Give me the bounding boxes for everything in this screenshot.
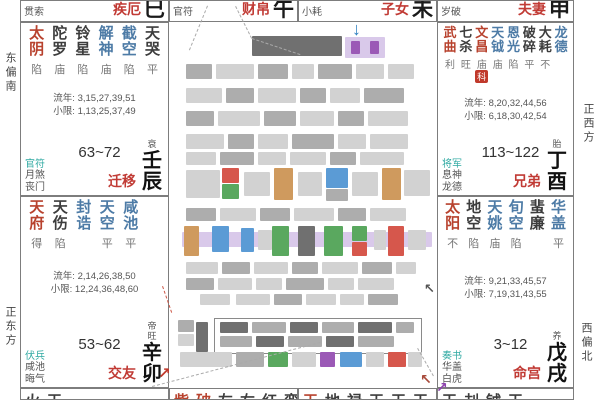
star-name: 文昌 — [475, 26, 488, 53]
liunian-xiaoxian: 流年: 2,14,26,38,50小限: 12,24,36,48,60 — [25, 270, 164, 296]
liunian-xiaoxian: 流年: 9,21,33,45,57小限: 7,19,31,43,55 — [442, 275, 569, 301]
censored-text-block — [338, 208, 366, 221]
censored-text-block — [388, 226, 404, 256]
censored-text-block — [274, 168, 293, 200]
star-天府: 天府得 — [25, 200, 49, 247]
star-天空: 天空平 — [96, 200, 120, 247]
censored-text-block — [330, 88, 360, 103]
censored-text-block — [340, 294, 364, 305]
censored-text-block — [186, 170, 220, 198]
brightness-label: 得 — [31, 235, 42, 247]
age-range: 113~122 — [476, 144, 545, 161]
star-铃星: 铃星陷 — [71, 26, 94, 73]
changsheng-label: 衰 — [146, 139, 159, 149]
censored-text-block — [196, 322, 208, 352]
censored-text-block — [260, 208, 290, 221]
star-旬空: 旬空陷 — [506, 200, 527, 247]
censored-text-block — [370, 208, 406, 221]
clipped-star-names: 天刦钺天 — [442, 390, 569, 400]
censored-text-block — [352, 242, 367, 256]
star-name: 陀罗 — [52, 26, 67, 58]
star-天钺: 天钺庙 — [490, 26, 506, 83]
censored-text-block — [360, 152, 404, 165]
censored-text-block — [300, 111, 334, 126]
branch-char: 未 — [412, 0, 433, 20]
star-大耗: 大耗不 — [537, 26, 553, 83]
censored-text-block — [258, 230, 272, 250]
censored-text-block — [352, 172, 378, 196]
star-name: 解神 — [99, 26, 114, 58]
censored-text-block — [368, 294, 398, 305]
liunian-xiaoxian: 流年: 3,15,27,39,51小限: 1,13,25,37,49 — [25, 92, 164, 118]
censored-text-block — [388, 352, 406, 367]
palace-footer: 伏兵咸池晦气53~62交友帝旺辛卯 — [25, 321, 164, 385]
xiaoxian-line: 小限: 1,13,25,37,49 — [25, 105, 164, 118]
brightness-label: 陷 — [124, 61, 135, 73]
brightness-label: 庙 — [489, 235, 500, 247]
palace-name-label: 命宫 — [513, 363, 541, 383]
xiaoxian-line: 小限: 7,19,31,43,55 — [442, 288, 569, 301]
censored-text-block — [298, 172, 322, 196]
palace-name-label: 财帛 — [242, 0, 270, 20]
palace-yin[interactable]: 火天 — [20, 388, 169, 400]
censored-text-block — [186, 152, 216, 165]
censored-text-block — [252, 322, 286, 333]
censored-text-block — [254, 262, 288, 274]
shensha-label: 咸池 — [25, 362, 59, 374]
liunian-xiaoxian: 流年: 8,20,32,44,56小限: 6,18,30,42,54 — [442, 97, 569, 123]
star-row: 太阳不地空陷天姚庙旬空陷蜚廉华盖平 — [442, 200, 569, 247]
clipped-star-names: 紫破左右红鸾 — [174, 390, 293, 400]
star-天哭: 天哭平 — [141, 26, 164, 73]
censored-text-block — [366, 352, 384, 367]
star-name: 天姚 — [487, 200, 502, 232]
star-name: 地空 — [466, 200, 481, 232]
censored-text-block — [396, 262, 416, 274]
changsheng-label: 养 — [551, 331, 564, 341]
censored-text-block — [274, 294, 302, 305]
censored-text-block — [338, 134, 366, 149]
star-name: 天伤 — [53, 200, 68, 232]
censored-text-block — [258, 88, 296, 103]
brightness-label: 陷 — [508, 56, 518, 68]
xiaoxian-line: 小限: 12,24,36,48,60 — [25, 283, 164, 296]
brightness-label: 庙 — [493, 56, 503, 68]
censored-text-block — [351, 41, 360, 54]
palace-xu[interactable]: 太阳不地空陷天姚庙旬空陷蜚廉华盖平流年: 9,21,33,45,57小限: 7,… — [437, 196, 574, 388]
censored-text-block — [228, 134, 254, 149]
changsheng-label: 帝旺 — [146, 321, 159, 341]
palace-chou[interactable]: 紫破左右红鸾 — [169, 388, 298, 400]
star-龙德: 龙德 — [553, 26, 569, 83]
censored-text-block — [358, 336, 394, 347]
palace-name-label: 疾厄 — [113, 0, 141, 20]
brightness-label: 陷 — [468, 235, 479, 247]
ganzhi-chars: 壬辰 — [142, 151, 162, 193]
branch-char: 申 — [549, 0, 570, 20]
brightness-label: 庙 — [477, 56, 487, 68]
star-华盖: 华盖平 — [548, 200, 569, 247]
censored-text-block — [292, 262, 318, 274]
palace-you[interactable]: 武曲利七杀旺文昌庙科天钺庙恩光陷破碎平大耗不龙德流年: 8,20,32,44,5… — [437, 22, 574, 196]
shensha-label: 丧门 — [25, 182, 59, 194]
censored-text-block — [404, 170, 430, 196]
star-name: 截空 — [122, 26, 137, 58]
star-咸池: 咸池平 — [119, 200, 143, 247]
palace-footer: 将军息神龙德113~122兄弟胎丁酉 — [442, 139, 569, 193]
censored-text-block — [306, 294, 336, 305]
censored-text-block — [200, 294, 230, 305]
purple-ne-arrow-icon: ↗ — [436, 380, 448, 394]
hua-ke-badge: 科 — [475, 70, 488, 83]
censored-text-block — [186, 208, 216, 221]
censored-text-block — [370, 41, 379, 54]
censored-text-block — [264, 111, 296, 126]
censored-text-block — [184, 226, 199, 256]
shensha-label: 官符 — [25, 159, 59, 171]
palace-shen[interactable]: 岁破夫妻申 — [437, 0, 574, 22]
censored-text-block — [382, 168, 401, 200]
censored-text-block — [290, 322, 318, 333]
ganzhi-chars: 戊戌 — [547, 343, 567, 385]
censored-text-block — [226, 88, 254, 103]
clipped-star-names: 天地禄天天天 — [303, 390, 432, 400]
censored-text-block — [330, 152, 356, 165]
censored-text-block — [186, 262, 218, 274]
brightness-label: 旺 — [461, 56, 471, 68]
brightness-label: 平 — [102, 235, 113, 247]
censored-text-block — [241, 228, 254, 252]
shensha-stack: 伏兵咸池晦气 — [25, 351, 59, 386]
clipped-star-names: 火天 — [25, 390, 164, 400]
star-太阳: 太阳不 — [442, 200, 463, 247]
censored-text-block — [220, 322, 248, 333]
censored-text-block — [364, 88, 404, 103]
censored-text-block — [220, 152, 254, 165]
liunian-line: 流年: 2,14,26,38,50 — [25, 270, 164, 283]
star-文昌: 文昌庙科 — [474, 26, 490, 83]
star-恩光: 恩光陷 — [506, 26, 522, 83]
shensha-label: 龙德 — [442, 182, 476, 194]
shensha-label: 贯索 — [24, 3, 44, 20]
shensha-label: 岁破 — [441, 3, 461, 20]
censored-text-block — [220, 208, 256, 221]
brightness-label: 庙 — [101, 61, 112, 73]
star-name: 大耗 — [539, 26, 552, 53]
shensha-label: 晦气 — [25, 374, 59, 386]
palace-name-label: 兄弟 — [513, 171, 541, 191]
censored-text-block — [358, 278, 394, 290]
brightness-label: 利 — [445, 56, 455, 68]
palace-name-label: 夫妻 — [518, 0, 546, 20]
red-nw-arrow-icon: ↖ — [420, 372, 432, 386]
direction-label-east: 正东方 — [2, 306, 18, 348]
star-name: 太阳 — [445, 200, 460, 232]
star-七杀: 七杀旺 — [458, 26, 474, 83]
star-天伤: 天伤陷 — [49, 200, 73, 247]
star-name: 华盖 — [551, 200, 566, 232]
censored-text-block — [322, 262, 358, 274]
star-name: 七杀 — [459, 26, 472, 53]
censored-text-block — [374, 230, 386, 250]
star-武曲: 武曲利 — [442, 26, 458, 83]
censored-text-block — [272, 226, 289, 256]
direction-label-east-south: 东偏南 — [2, 52, 18, 94]
star-太阴: 太阴陷 — [25, 26, 48, 73]
brightness-label: 平 — [524, 56, 534, 68]
censored-text-block — [256, 278, 282, 290]
palace-name-label: 迁移 — [108, 171, 136, 191]
shensha-label: 华盖 — [442, 362, 476, 374]
star-解神: 解神庙 — [95, 26, 118, 73]
liunian-line: 流年: 9,21,33,45,57 — [442, 275, 569, 288]
star-name: 破碎 — [523, 26, 536, 53]
ziwei-chart: 东偏南 正东方 正西方 西偏北 贯索疾厄巳官符财帛午小耗子女未岁破夫妻申 太阴陷… — [0, 0, 600, 400]
star-地空: 地空陷 — [463, 200, 484, 247]
star-截空: 截空陷 — [118, 26, 141, 73]
censored-text-block — [186, 64, 212, 79]
palace-title: 财帛午 — [242, 0, 294, 20]
star-name: 武曲 — [443, 26, 456, 53]
censored-text-block — [178, 320, 194, 332]
brightness-label: 平 — [553, 235, 564, 247]
censored-text-block — [292, 352, 316, 367]
brightness-label: 陷 — [55, 235, 66, 247]
palace-wu[interactable]: 官符财帛午 — [169, 0, 298, 22]
censored-text-block — [244, 172, 270, 196]
ganzhi-chars: 丁酉 — [547, 151, 567, 193]
brightness-label: 不 — [447, 235, 458, 247]
star-name: 太阴 — [29, 26, 44, 58]
censored-text-block — [396, 322, 414, 333]
shensha-label: 息神 — [442, 170, 476, 182]
palace-chen[interactable]: 太阴陷陀罗庙铃星陷解神庙截空陷天哭平流年: 3,15,27,39,51小限: 1… — [20, 22, 169, 196]
palace-title: 子女未 — [381, 0, 433, 20]
censored-text-block — [186, 134, 224, 149]
censored-text-block — [178, 334, 194, 346]
star-name: 天钺 — [491, 26, 504, 53]
censored-text-block — [326, 336, 354, 347]
censored-text-block — [216, 64, 254, 79]
palace-hai[interactable]: 天刦钺天 — [437, 388, 574, 400]
censored-text-block — [362, 262, 392, 274]
palace-title: 夫妻申 — [518, 0, 570, 20]
censored-text-block — [298, 226, 315, 256]
palace-zi[interactable]: 天地禄天天天 — [298, 388, 437, 400]
censored-text-block — [326, 189, 348, 201]
censored-text-block — [236, 294, 270, 305]
censored-text-block — [368, 111, 408, 126]
palace-si[interactable]: 贯索疾厄巳 — [20, 0, 169, 22]
brightness-label: 不 — [540, 56, 550, 68]
censored-text-block — [326, 168, 348, 188]
shensha-label: 官符 — [173, 3, 193, 20]
censored-text-block — [292, 134, 334, 149]
shensha-stack: 将军息神龙德 — [442, 159, 476, 194]
censored-text-block — [320, 352, 335, 367]
palace-wei[interactable]: 小耗子女未 — [298, 0, 437, 22]
brightness-label: 陷 — [77, 61, 88, 73]
censored-text-block — [186, 88, 222, 103]
direction-label-west-north: 西偏北 — [578, 322, 594, 364]
star-row: 天府得天伤陷封诰天空平咸池平 — [25, 200, 164, 247]
censored-text-block — [338, 111, 364, 126]
shensha-label: 奏书 — [442, 351, 476, 363]
censored-text-block — [322, 322, 354, 333]
palace-title: 疾厄巳 — [113, 0, 165, 20]
xiaoxian-line: 小限: 6,18,30,42,54 — [442, 110, 569, 123]
brightness-label: 庙 — [54, 61, 65, 73]
gray-nw-arrow-icon: ↖ — [424, 282, 435, 295]
star-破碎: 破碎平 — [521, 26, 537, 83]
censored-text-block — [358, 322, 392, 333]
palace-name-label: 交友 — [108, 363, 136, 383]
star-name: 铃星 — [75, 26, 90, 58]
shensha-label: 伏兵 — [25, 351, 59, 363]
star-name: 蜚廉 — [530, 200, 545, 232]
age-range: 63~72 — [59, 144, 140, 161]
palace-footer: 官符月煞丧门63~72迁移衰壬辰 — [25, 139, 164, 193]
brightness-label: 陷 — [31, 61, 42, 73]
censored-text-block — [220, 336, 252, 347]
censored-text-block — [258, 152, 286, 165]
censored-text-block — [258, 134, 288, 149]
star-name: 龙德 — [555, 26, 568, 53]
palace-mao[interactable]: 天府得天伤陷封诰天空平咸池平流年: 2,14,26,38,50小限: 12,24… — [20, 196, 169, 388]
censored-text-block — [300, 88, 326, 103]
censored-text-block — [370, 134, 408, 149]
censored-text-block — [222, 168, 239, 183]
liunian-line: 流年: 3,15,27,39,51 — [25, 92, 164, 105]
brightness-label: 平 — [147, 61, 158, 73]
star-row: 武曲利七杀旺文昌庙科天钺庙恩光陷破碎平大耗不龙德 — [442, 26, 569, 83]
shensha-stack: 官符月煞丧门 — [25, 159, 59, 194]
star-name: 天空 — [100, 200, 115, 232]
star-name: 咸池 — [123, 200, 138, 232]
branch-char: 巳 — [144, 0, 165, 20]
star-蜚廉: 蜚廉 — [527, 200, 548, 247]
censored-text-block — [356, 64, 384, 79]
censored-text-block — [258, 64, 288, 79]
censored-text-block — [218, 111, 260, 126]
censored-text-block — [388, 64, 414, 79]
censored-text-block — [222, 262, 250, 274]
censored-text-block — [286, 278, 324, 290]
censored-text-block — [212, 226, 229, 252]
censored-text-block — [340, 352, 362, 367]
liunian-line: 流年: 8,20,32,44,56 — [442, 97, 569, 110]
censored-text-block — [186, 278, 214, 290]
censored-text-block — [328, 278, 354, 290]
star-天姚: 天姚庙 — [484, 200, 505, 247]
brightness-label: 陷 — [511, 235, 522, 247]
censored-text-block — [352, 226, 367, 241]
age-range: 53~62 — [59, 336, 140, 353]
palace-footer: 奏书华盖白虎3~12命宫养戊戌 — [442, 331, 569, 385]
direction-label-west: 正西方 — [580, 103, 596, 145]
age-range: 3~12 — [476, 336, 545, 353]
shensha-label: 小耗 — [302, 3, 322, 20]
censored-text-block — [318, 64, 352, 79]
censored-text-block — [186, 111, 214, 126]
star-row: 太阴陷陀罗庙铃星陷解神庙截空陷天哭平 — [25, 26, 164, 73]
palace-name-label: 子女 — [381, 0, 409, 20]
censored-text-block — [256, 336, 284, 347]
censored-text-block — [290, 152, 326, 165]
brightness-label: 平 — [125, 235, 136, 247]
star-name: 封诰 — [76, 200, 91, 232]
censored-text-block — [324, 226, 343, 256]
star-name: 天哭 — [145, 26, 160, 58]
star-封诰: 封诰 — [72, 200, 96, 247]
censored-text-block — [294, 208, 334, 221]
censored-text-block — [180, 352, 232, 367]
star-陀罗: 陀罗庙 — [48, 26, 71, 73]
star-name: 旬空 — [509, 200, 524, 232]
blue-down-arrow-icon: ↓ — [352, 20, 361, 38]
shensha-label: 将军 — [442, 159, 476, 171]
censored-text-block — [218, 278, 252, 290]
star-name: 天府 — [29, 200, 44, 232]
censored-text-block — [222, 184, 239, 199]
red-ne-arrow-icon: ↗ — [158, 366, 171, 381]
censored-text-block — [408, 230, 426, 250]
branch-char: 午 — [273, 0, 294, 20]
changsheng-label: 胎 — [551, 139, 564, 149]
star-name: 恩光 — [507, 26, 520, 53]
shensha-label: 月煞 — [25, 170, 59, 182]
censored-text-block — [292, 64, 314, 79]
